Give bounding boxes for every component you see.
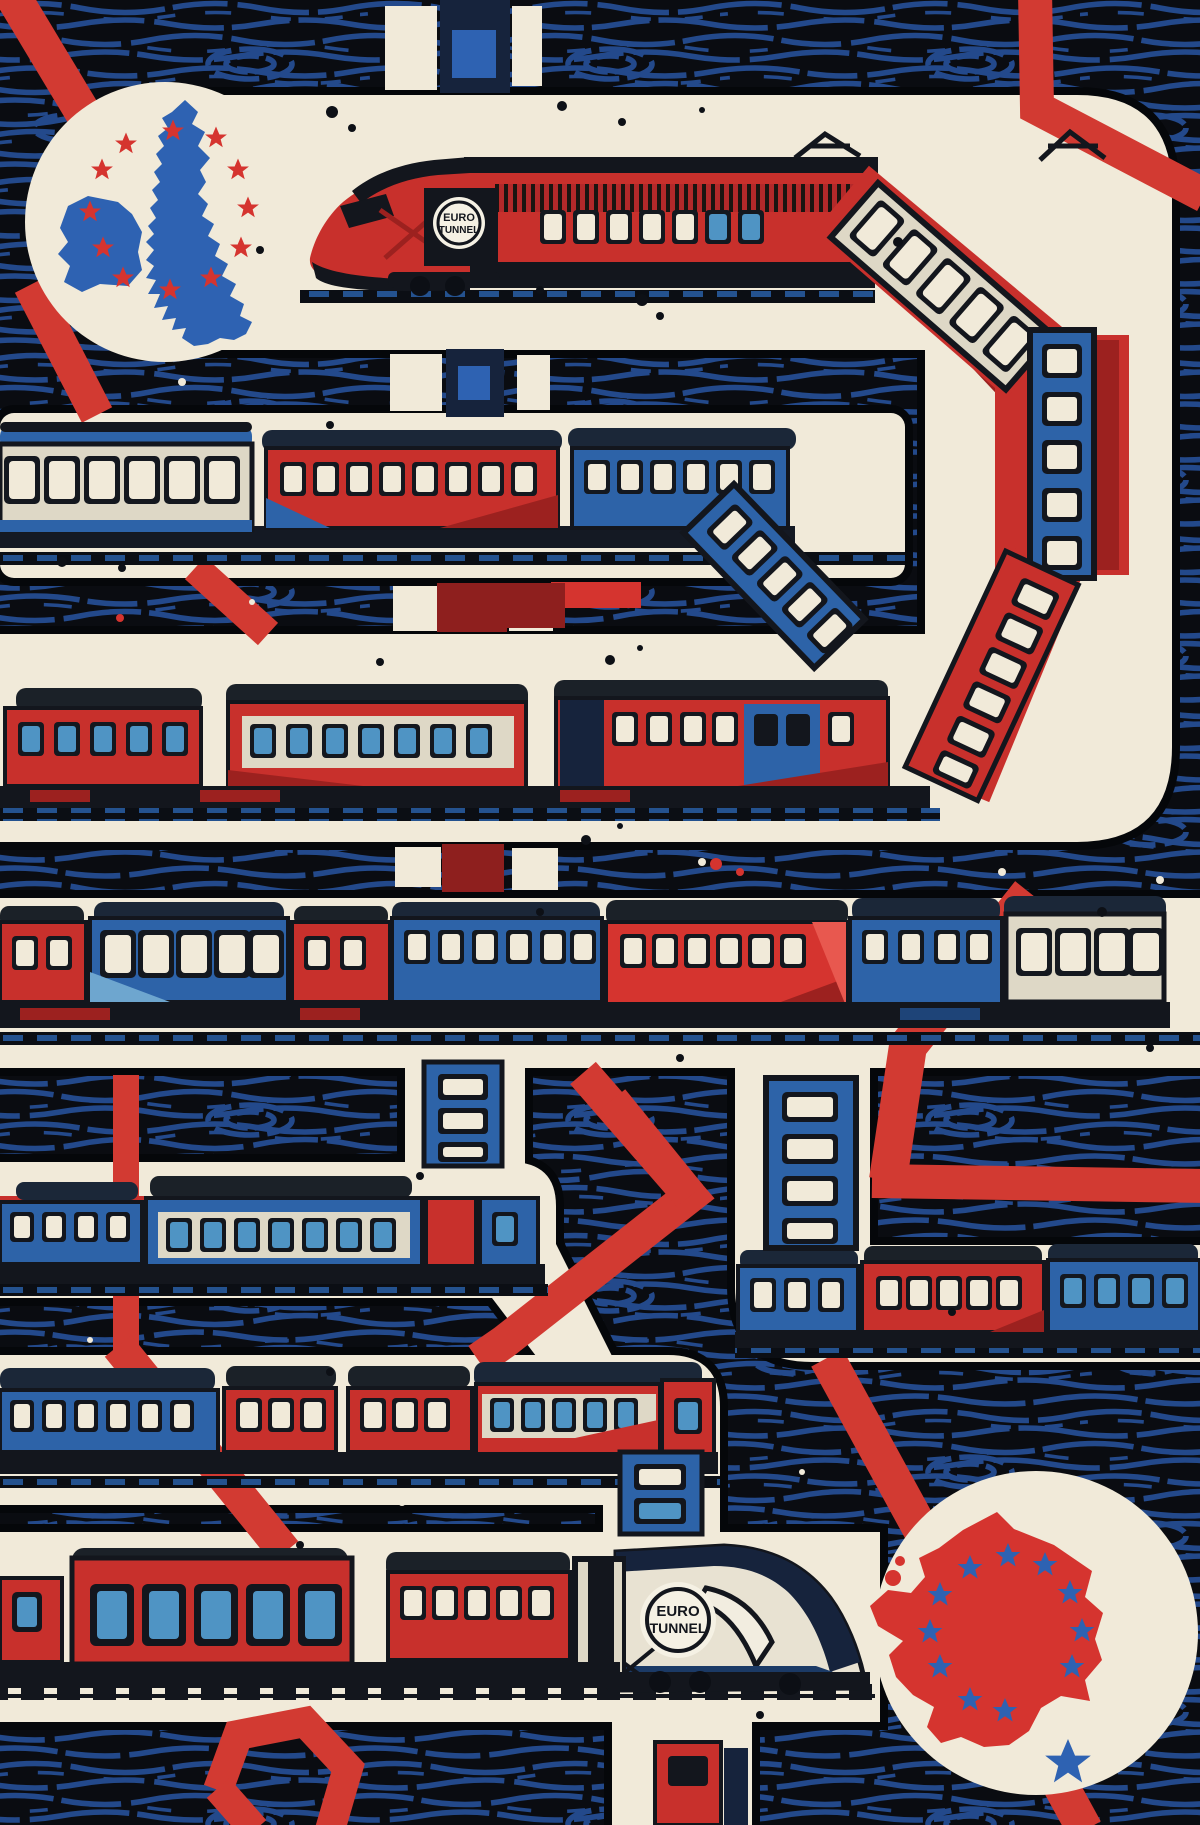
svg-text:TUNNEL: TUNNEL — [439, 225, 480, 236]
svg-text:EURO: EURO — [656, 1603, 700, 1620]
svg-text:TUNNEL: TUNNEL — [650, 1620, 707, 1636]
svg-text:EURO: EURO — [443, 212, 475, 224]
